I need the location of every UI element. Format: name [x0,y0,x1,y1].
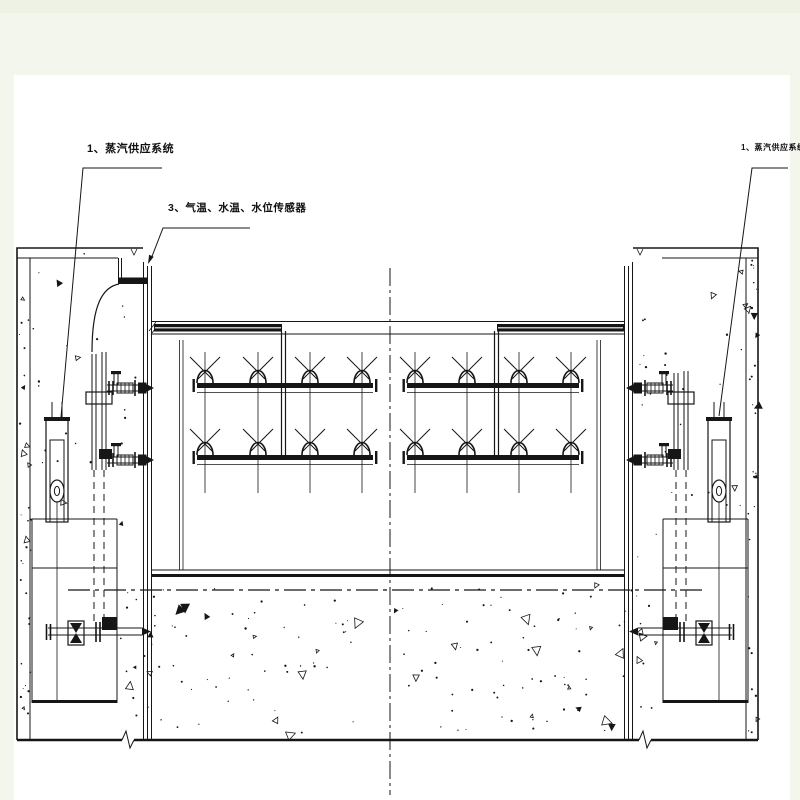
valve-icon [68,621,84,645]
left-pier [17,248,143,740]
flow-arrow-icon [626,384,634,392]
drain-pipe-left [47,621,152,645]
steam-radiator-assemblies [190,352,586,493]
gate-leaf [149,322,625,576]
flow-arrow-icon [626,456,634,464]
annotation-label: 1、蒸汽供应系统 [87,141,174,155]
right-pier [633,248,758,740]
cad-viewer: 1、蒸汽供应系统 3、气温、水温、水位传感器 1、蒸汽供应系统 [0,0,800,800]
gate-slot-right [625,262,633,739]
concrete-stipple-texture [19,253,762,740]
gate-feed-connection-left-lower [107,443,154,468]
drain-pipe-right [629,621,734,645]
annotation-label: 1、蒸汽供应系统 [741,142,800,152]
centerline-dash-dot [68,268,706,795]
valve-icon [696,621,712,645]
gate-feed-connection-right-lower [626,443,673,468]
leader-arrow-icon [148,255,154,264]
gate-feed-connection-right-upper [626,371,673,396]
gate-slot-left [144,262,152,739]
flow-arrow-icon [146,384,154,392]
annotation-label: 3、气温、水温、水位传感器 [168,201,306,214]
foundation-ground-line [17,731,758,748]
hoist-cylinder-left [44,402,70,700]
riser-pipes-right [663,371,694,630]
flow-arrow-icon [146,456,154,464]
annotation-steam-supply-right: 1、蒸汽供应系统 [719,142,800,416]
annotation-sensors: 3、气温、水温、水位传感器 [148,201,306,264]
gate-feed-connection-left-upper [107,371,154,396]
flow-arrow-icon [629,628,638,636]
section-drawing: 1、蒸汽供应系统 3、气温、水温、水位传感器 1、蒸汽供应系统 [0,0,800,800]
hoist-cylinder-right [706,402,732,700]
steam-header-pipe [154,324,624,459]
